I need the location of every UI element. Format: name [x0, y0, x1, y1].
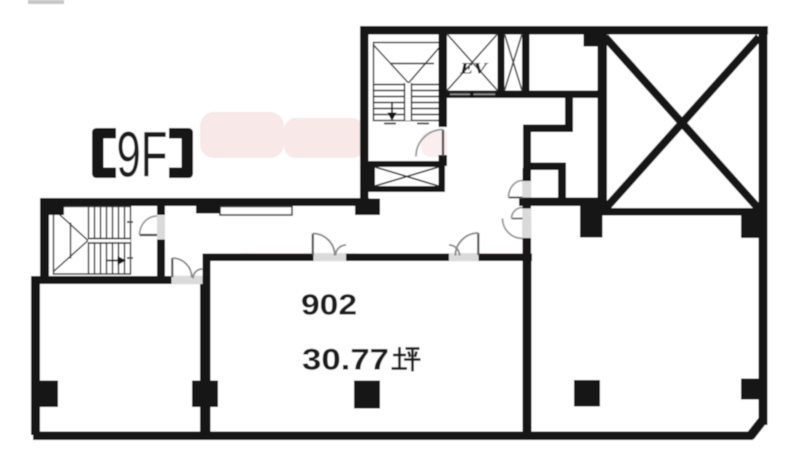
- svg-text:902: 902: [301, 290, 357, 322]
- svg-text:EV: EV: [459, 61, 489, 78]
- svg-text:9F: 9F: [117, 119, 168, 191]
- svg-text:30.77: 30.77: [302, 344, 389, 377]
